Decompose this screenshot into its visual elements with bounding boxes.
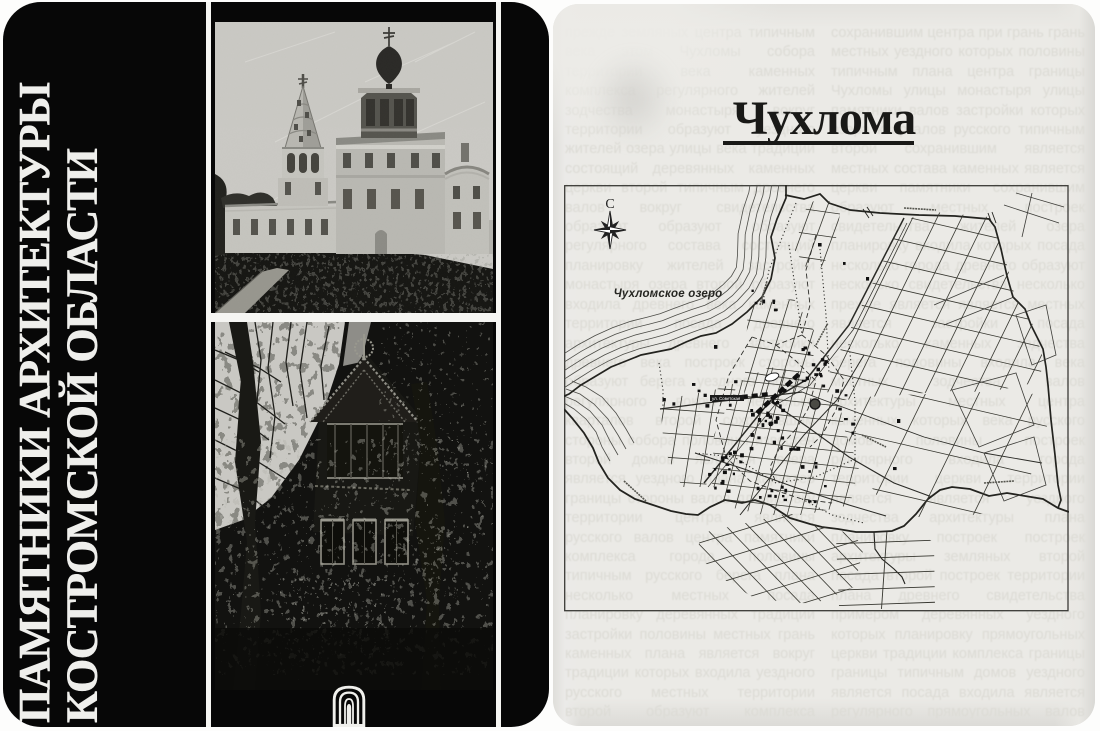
svg-text:ул. Советская: ул. Советская (712, 396, 741, 401)
svg-text:С: С (605, 197, 614, 212)
svg-text:Чухломское озеро: Чухломское озеро (614, 288, 723, 300)
